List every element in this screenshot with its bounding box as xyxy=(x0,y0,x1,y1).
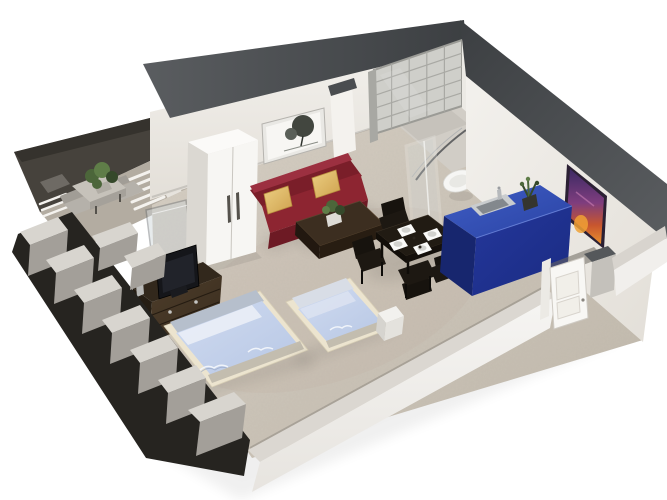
cup xyxy=(413,237,416,240)
plant-leaves xyxy=(92,179,102,189)
plant-leaf xyxy=(535,181,539,185)
drawer-knob xyxy=(168,310,172,314)
door-knob xyxy=(581,298,584,301)
plant-leaf xyxy=(520,182,524,186)
plant-leaf xyxy=(526,177,530,181)
plate xyxy=(402,227,411,233)
toilet-shadow xyxy=(449,191,473,201)
plate xyxy=(428,231,437,237)
cup xyxy=(419,246,422,249)
plant-leaves xyxy=(335,205,345,215)
wardrobe xyxy=(186,129,262,272)
drawer-knob xyxy=(194,300,198,304)
floor-plan-canvas xyxy=(0,0,667,500)
plate xyxy=(394,241,403,247)
plant-leaves xyxy=(106,171,118,183)
plant-stem xyxy=(528,180,529,198)
art-tree-canopy-small xyxy=(285,128,297,140)
painting-orange-blob xyxy=(574,215,588,233)
floor-plan-render xyxy=(0,0,667,500)
plant-leaves xyxy=(322,206,330,214)
faucet-head xyxy=(498,187,501,190)
